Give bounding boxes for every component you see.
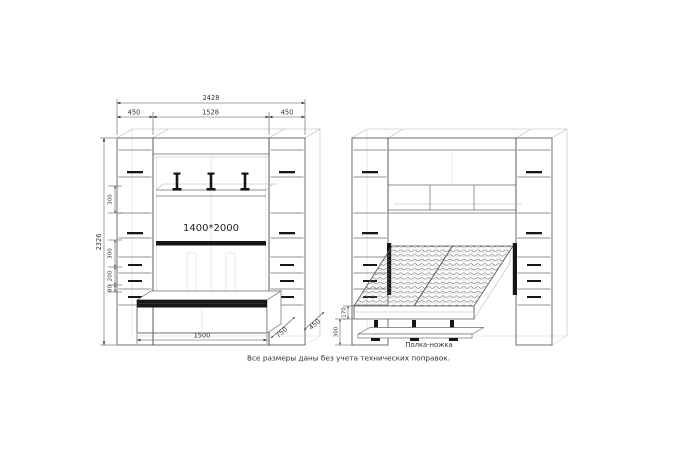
closed-left-dimensions: 2326 300 300 200 80 <box>95 138 122 345</box>
hinge-right <box>513 243 517 295</box>
drawing-canvas: 1400*2000 2428 450 <box>0 0 700 470</box>
dim-drawer-section: 200 <box>108 270 114 281</box>
dim-plinth-height: 80 <box>108 285 114 293</box>
bench <box>137 291 281 333</box>
dim-bench-width: 1500 <box>194 332 211 340</box>
dim-center-width: 1528 <box>202 109 219 117</box>
closed-view-back-wireframe <box>117 129 320 345</box>
leg-foot <box>371 338 380 341</box>
open-right-column <box>516 138 552 345</box>
caption: Все размеры даны без учета технических п… <box>247 354 450 363</box>
open-top-bridge <box>388 138 522 213</box>
folded-leg-brackets <box>173 173 250 191</box>
dim-total-height: 2326 <box>95 234 103 251</box>
mattress-size-label: 1400*2000 <box>183 223 239 234</box>
dim-right-side-width: 450 <box>281 109 294 117</box>
dim-middle-section: 300 <box>108 248 114 259</box>
leg-shelf-edge <box>358 334 472 338</box>
bed-frame-front <box>354 306 474 319</box>
closed-view-drawing: 1400*2000 2428 450 <box>95 94 324 345</box>
leg-shelf-board <box>358 328 484 335</box>
closed-bottom-dimensions: 1500 750 450 <box>137 312 324 344</box>
leg-shelf-label: Полка-ножка <box>405 341 452 349</box>
open-bed: Полка-ножка <box>354 246 513 349</box>
dim-leg-height: 300 <box>334 326 340 337</box>
closed-center-cabinet: 1400*2000 <box>153 138 278 345</box>
bed-panel-edge-strip <box>156 241 266 246</box>
dim-frame-height: 170 <box>342 307 348 318</box>
dim-total-width: 2428 <box>203 94 220 102</box>
closed-left-column <box>117 138 153 345</box>
dim-left-side-width: 450 <box>128 109 141 117</box>
open-view-dimensions: 170 300 <box>334 306 355 345</box>
open-view-drawing: Полка-ножка 170 300 <box>334 129 568 349</box>
wall-bed-technical-drawing: 1400*2000 2428 450 <box>0 0 700 470</box>
dim-upper-section: 300 <box>108 194 114 205</box>
dim-bench-depth: 750 <box>274 325 289 339</box>
